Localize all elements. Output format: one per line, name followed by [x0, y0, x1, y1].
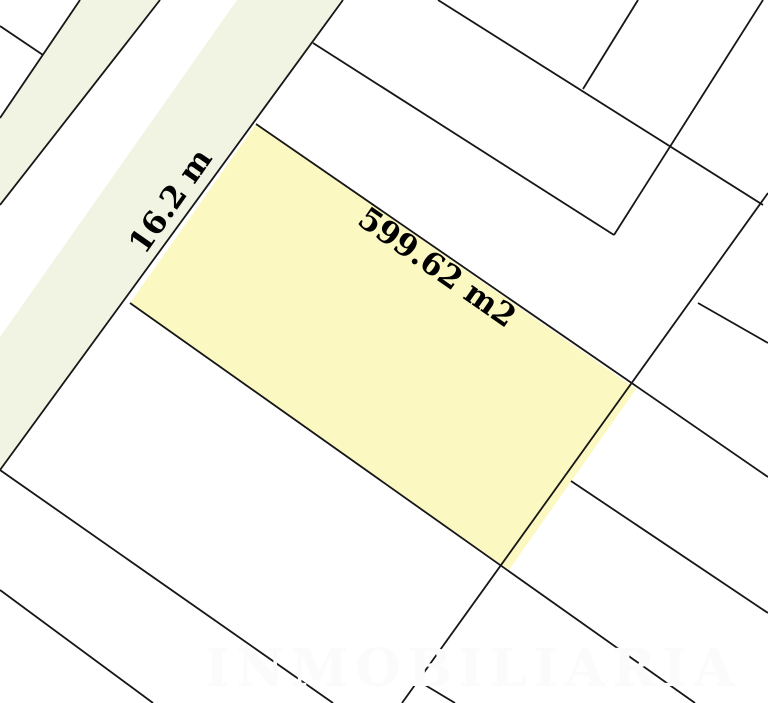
parcel-map-canvas: INMOBILIARIA 16.2 m 599.62 m2 [0, 0, 768, 703]
watermark-text: INMOBILIARIA [205, 638, 741, 699]
cadastral-map: INMOBILIARIA 16.2 m 599.62 m2 [0, 0, 768, 703]
